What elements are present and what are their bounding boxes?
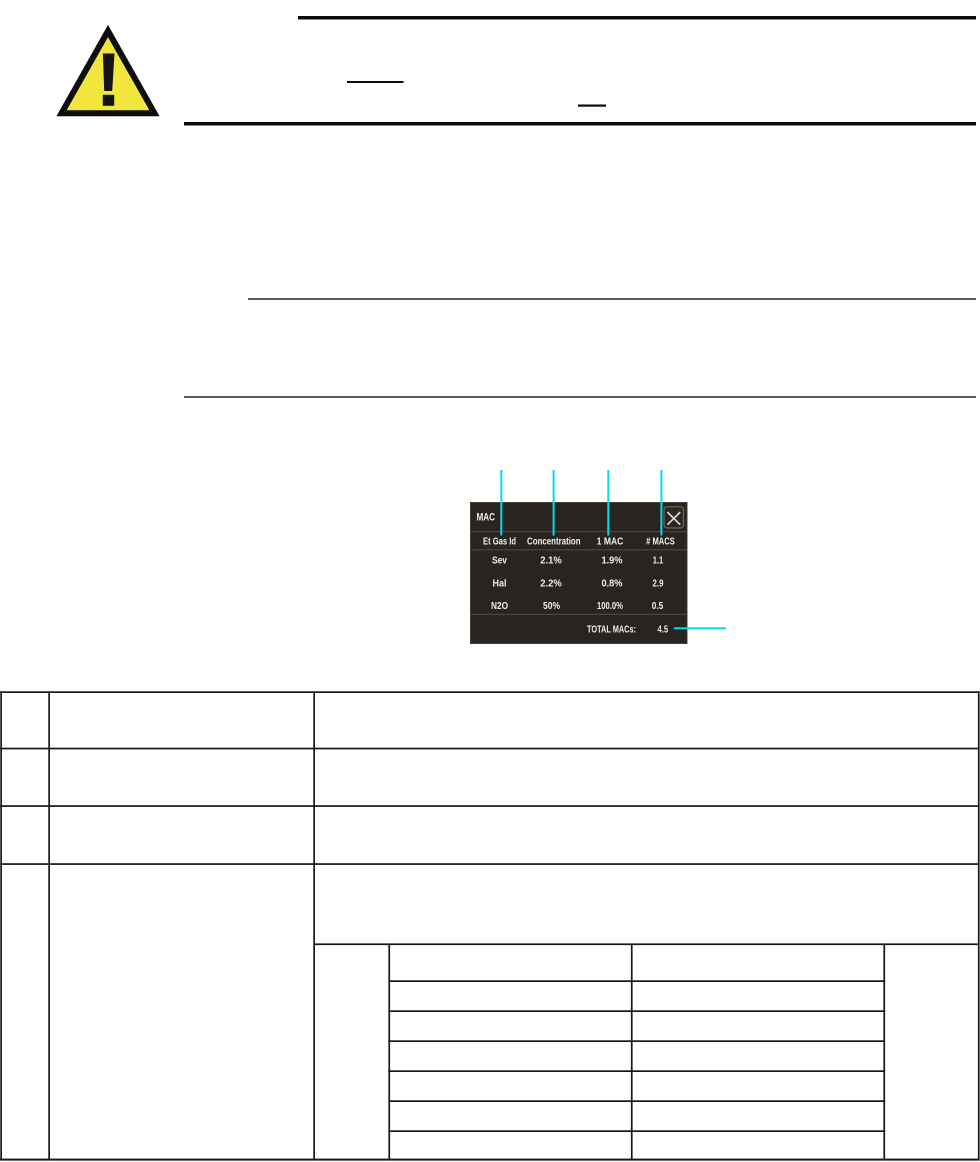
svg-text:0.8%: 0.8% xyxy=(602,579,623,590)
svg-text:100.0%: 100.0% xyxy=(597,601,623,612)
svg-text:Sev: Sev xyxy=(492,556,507,567)
svg-text:Hal: Hal xyxy=(493,579,507,590)
svg-text:4.5: 4.5 xyxy=(658,625,669,636)
svg-text:Concentration: Concentration xyxy=(527,537,581,548)
svg-text:2.9: 2.9 xyxy=(653,579,664,590)
svg-text:1.9%: 1.9% xyxy=(602,556,623,567)
svg-text:TOTAL MACs:: TOTAL MACs: xyxy=(587,625,636,636)
svg-text:50%: 50% xyxy=(543,601,560,612)
svg-text:Et Gas Id: Et Gas Id xyxy=(483,537,516,548)
svg-text:N2O: N2O xyxy=(491,601,508,612)
svg-text:0.5: 0.5 xyxy=(652,601,664,612)
svg-text:2.2%: 2.2% xyxy=(540,579,562,590)
svg-text:# MACS: # MACS xyxy=(646,537,675,548)
svg-text:2.1%: 2.1% xyxy=(540,556,562,567)
svg-text:1.1: 1.1 xyxy=(653,556,664,567)
svg-text:MAC: MAC xyxy=(477,512,496,524)
svg-text:1 MAC: 1 MAC xyxy=(597,537,624,548)
